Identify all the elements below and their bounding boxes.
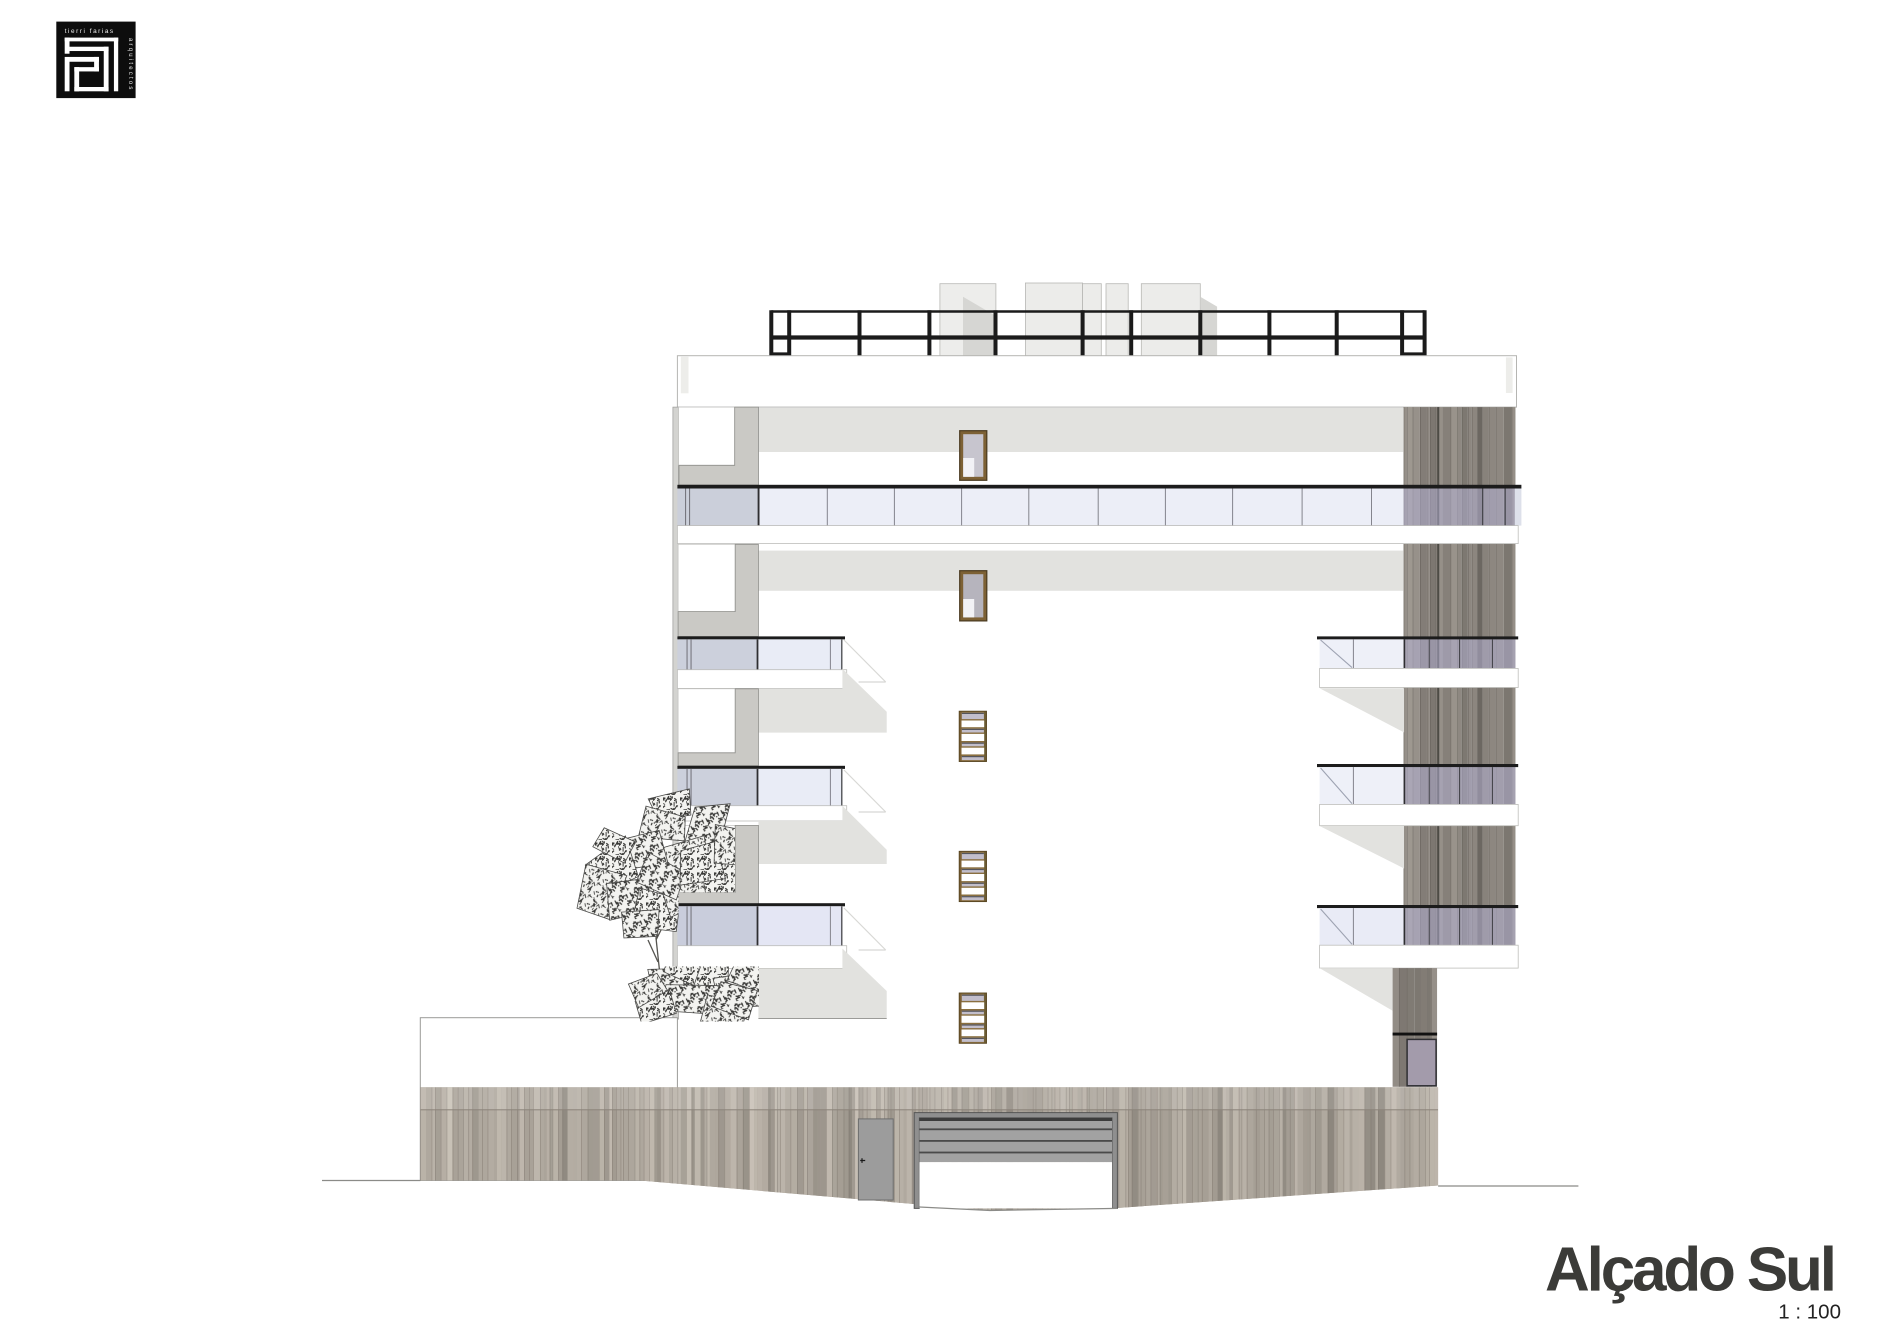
- svg-text:tierri farias: tierri farias: [65, 28, 115, 35]
- svg-text:Alçado Sul: Alçado Sul: [1545, 1236, 1837, 1305]
- svg-text:1 : 100: 1 : 100: [1778, 1301, 1841, 1324]
- svg-text:arquitectos: arquitectos: [127, 38, 133, 92]
